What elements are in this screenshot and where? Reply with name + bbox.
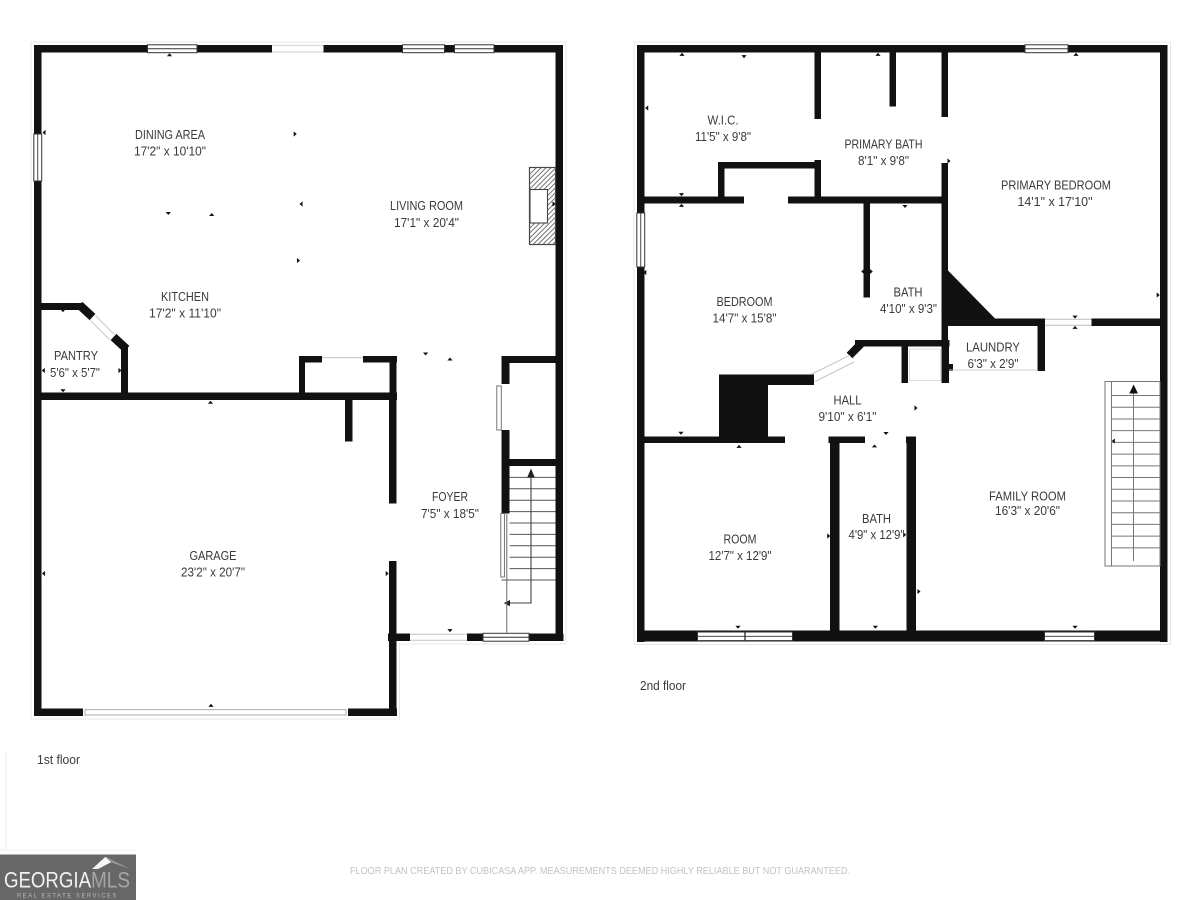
- svg-text:FAMILY ROOM: FAMILY ROOM: [989, 489, 1066, 504]
- svg-text:BATH: BATH: [862, 511, 891, 526]
- svg-text:17'2" x 10'10": 17'2" x 10'10": [134, 144, 206, 159]
- svg-text:7'5" x 18'5": 7'5" x 18'5": [421, 506, 479, 521]
- svg-text:PANTRY: PANTRY: [54, 348, 98, 363]
- svg-text:BATH: BATH: [894, 285, 923, 300]
- svg-text:14'1" x 17'10": 14'1" x 17'10": [1018, 194, 1093, 209]
- svg-text:17'2" x 11'10": 17'2" x 11'10": [149, 306, 221, 321]
- svg-text:FOYER: FOYER: [432, 489, 468, 504]
- svg-text:ROOM: ROOM: [724, 532, 757, 547]
- svg-text:11'5" x 9'8": 11'5" x 9'8": [695, 129, 751, 144]
- svg-text:GEORGIA: GEORGIA: [4, 868, 91, 893]
- svg-text:BEDROOM: BEDROOM: [717, 294, 773, 309]
- svg-text:MLS: MLS: [91, 868, 130, 893]
- svg-text:14'7" x 15'8": 14'7" x 15'8": [713, 311, 777, 326]
- svg-text:FLOOR PLAN CREATED BY CUBICASA: FLOOR PLAN CREATED BY CUBICASA APP. MEAS…: [350, 866, 850, 877]
- svg-text:23'2" x 20'7": 23'2" x 20'7": [181, 565, 245, 580]
- svg-text:9'10" x 6'1": 9'10" x 6'1": [819, 409, 877, 424]
- svg-text:17'1" x 20'4": 17'1" x 20'4": [394, 215, 459, 230]
- svg-text:GARAGE: GARAGE: [190, 548, 237, 563]
- svg-text:12'7" x 12'9": 12'7" x 12'9": [709, 548, 772, 563]
- svg-text:8'1" x 9'8": 8'1" x 9'8": [858, 153, 909, 168]
- svg-text:5'6" x 5'7": 5'6" x 5'7": [50, 365, 100, 380]
- svg-text:W.I.C.: W.I.C.: [708, 113, 739, 128]
- svg-text:LIVING ROOM: LIVING ROOM: [390, 198, 463, 213]
- svg-text:16'3" x 20'6": 16'3" x 20'6": [995, 503, 1060, 518]
- svg-text:LAUNDRY: LAUNDRY: [966, 340, 1020, 355]
- svg-text:6'3" x 2'9": 6'3" x 2'9": [968, 356, 1019, 371]
- svg-text:2nd floor: 2nd floor: [640, 678, 687, 693]
- svg-text:DINING AREA: DINING AREA: [135, 127, 205, 142]
- svg-text:4'9" x 12'9": 4'9" x 12'9": [849, 527, 905, 542]
- svg-text:1st floor: 1st floor: [37, 752, 81, 767]
- svg-text:KITCHEN: KITCHEN: [161, 289, 209, 304]
- svg-text:PRIMARY BEDROOM: PRIMARY BEDROOM: [1001, 178, 1111, 193]
- svg-text:REAL ESTATE SERVICES: REAL ESTATE SERVICES: [17, 893, 118, 900]
- svg-text:PRIMARY BATH: PRIMARY BATH: [845, 137, 923, 152]
- svg-text:4'10" x 9'3": 4'10" x 9'3": [880, 301, 937, 316]
- svg-text:HALL: HALL: [834, 393, 862, 408]
